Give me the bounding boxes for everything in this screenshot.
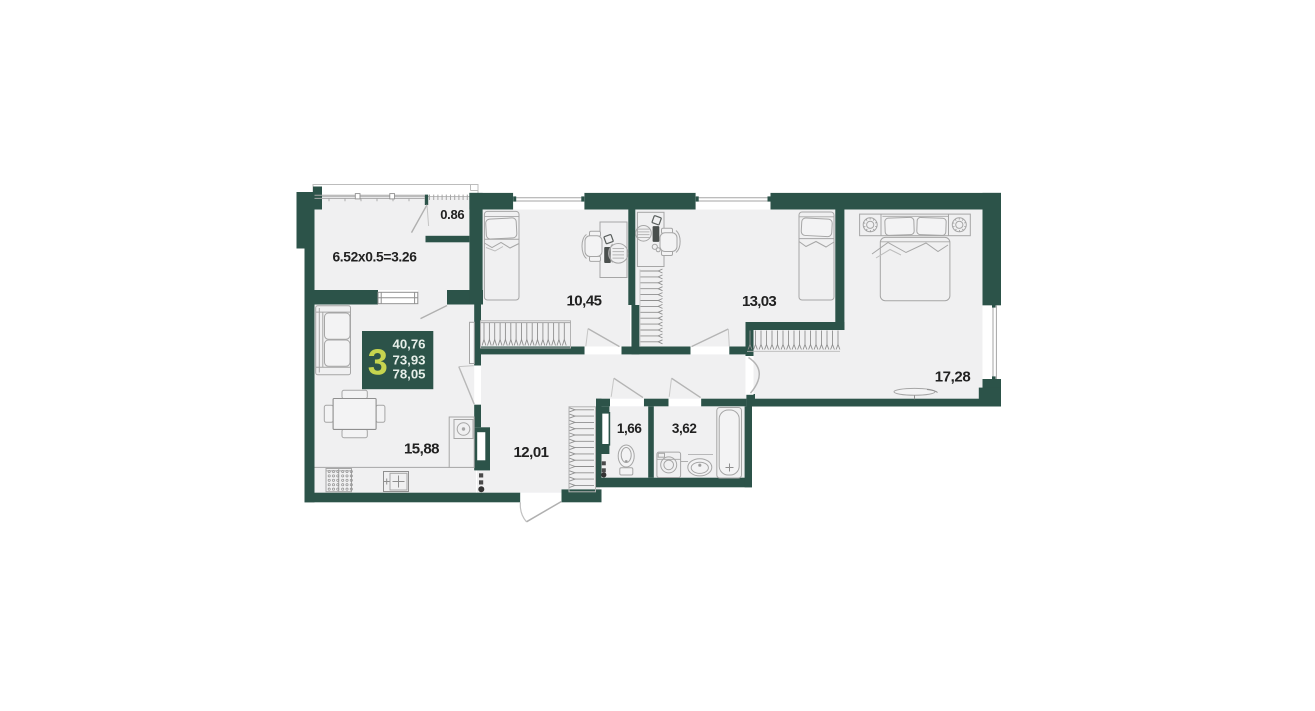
svg-text:17,28: 17,28: [935, 368, 971, 385]
svg-text:0.86: 0.86: [440, 207, 464, 222]
svg-text:73,93: 73,93: [392, 352, 425, 367]
svg-text:1,66: 1,66: [617, 421, 643, 436]
svg-text:10,45: 10,45: [566, 292, 601, 309]
svg-text:3,62: 3,62: [672, 421, 697, 436]
svg-text:3: 3: [368, 342, 388, 383]
svg-text:6.52x0.5=3.26: 6.52x0.5=3.26: [332, 250, 417, 265]
svg-text:13,03: 13,03: [742, 293, 776, 310]
svg-text:15,88: 15,88: [404, 441, 439, 458]
svg-text:40,76: 40,76: [392, 336, 425, 351]
svg-text:12,01: 12,01: [513, 444, 548, 461]
svg-text:78,05: 78,05: [392, 367, 425, 382]
